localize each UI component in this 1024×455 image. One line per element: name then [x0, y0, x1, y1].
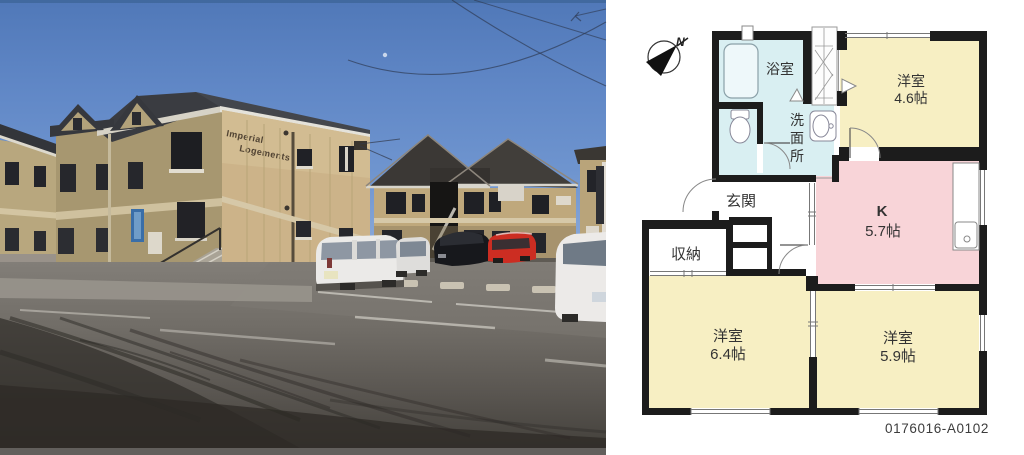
- svg-text:面: 面: [790, 130, 804, 146]
- svg-text:K: K: [877, 203, 888, 220]
- svg-text:洗: 洗: [790, 112, 804, 128]
- svg-text:玄関: 玄関: [726, 193, 756, 210]
- svg-text:6.4帖: 6.4帖: [710, 346, 746, 363]
- svg-text:所: 所: [790, 148, 804, 164]
- svg-text:5.9帖: 5.9帖: [880, 348, 916, 365]
- svg-text:5.7帖: 5.7帖: [865, 223, 901, 240]
- svg-text:4.6帖: 4.6帖: [894, 90, 927, 106]
- svg-text:N: N: [676, 35, 685, 49]
- svg-text:洋室: 洋室: [897, 73, 925, 89]
- svg-text:0176016-A0102: 0176016-A0102: [885, 421, 989, 436]
- svg-text:浴室: 浴室: [766, 61, 794, 77]
- svg-text:洋室: 洋室: [883, 330, 913, 347]
- svg-text:収納: 収納: [671, 246, 701, 263]
- svg-text:洋室: 洋室: [713, 328, 743, 345]
